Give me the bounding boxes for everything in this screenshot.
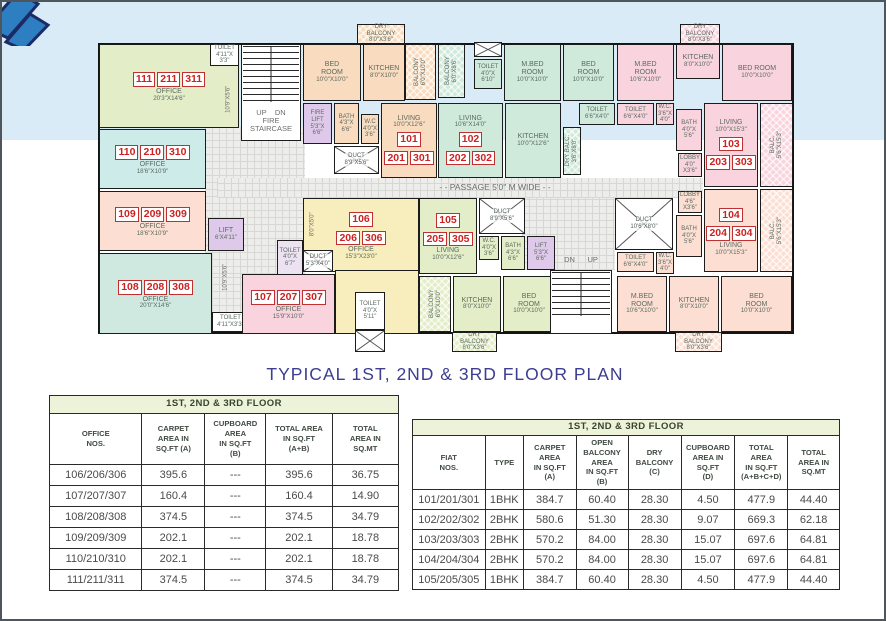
- room-label: 4'0"X: [363, 126, 377, 133]
- room-label: 3'3": [220, 58, 230, 65]
- unit-number-plate: 302: [472, 151, 496, 166]
- table-cell: 18.78: [332, 528, 398, 549]
- table-row: 109/209/309202.1---202.118.78: [50, 528, 399, 549]
- unit-number-plate: 310: [166, 145, 190, 160]
- room-label: STAIRCASE: [250, 125, 292, 133]
- unit-number-plate: 211: [157, 72, 180, 87]
- duct-105: DUCT8'9"X5'6": [479, 198, 525, 234]
- floor-plan-sheet: DRYBALCONY8'0"X3'6"DRYBALCONY8'0"X3'6"DR…: [0, 0, 886, 621]
- unit-number-plate: 102: [459, 132, 483, 147]
- table-row: 102/202/3022BHK580.651.3028.309.07669.36…: [413, 510, 840, 530]
- room-label: X3'6": [683, 168, 697, 175]
- table-cell: 2BHK: [485, 510, 523, 530]
- unit-number-plate: 303: [732, 155, 756, 170]
- table-row: 104/204/3042BHK570.284.0028.3015.07697.6…: [413, 550, 840, 570]
- mid-staircase-label: DN UP: [550, 254, 612, 267]
- unit-number-row: 102: [458, 130, 484, 147]
- room-bedroom-101: BEDROOM10'0"X10'0": [303, 44, 361, 101]
- table-cell: 109/209/309: [50, 528, 142, 549]
- table-cell: 14.90: [332, 486, 398, 507]
- table-cell: ---: [205, 549, 266, 570]
- rotated-label: 8'0"X5'0": [310, 212, 317, 236]
- unit-number-row: 109209309: [114, 205, 191, 222]
- dry-balcony-104: DRYBALCONY8'0"X3'6": [675, 332, 722, 352]
- rotated-label: BALCONY6'0"X10'0": [414, 58, 427, 87]
- room-label: 5'3"X: [534, 250, 548, 257]
- table-cell: 62.18: [788, 510, 840, 530]
- room-office-108: 108208308OFFICE20'0"X14'6": [99, 253, 212, 334]
- unit-number-plate: 305: [449, 232, 473, 247]
- table-header-cell: OPEN BALCONY AREA IN SQ.FT (B): [576, 436, 628, 490]
- table-header-cell: CUPBOARD AREA IN SQ.FT (D): [681, 436, 735, 490]
- room-label: 10'9"X5'6": [223, 264, 230, 291]
- room-living-102: LIVING10'6"X14'0"102202302: [438, 103, 503, 178]
- room-label: BALCONY: [460, 339, 489, 346]
- unit-number-row: 205305: [422, 230, 473, 247]
- table-row: 103/203/3032BHK570.284.0028.3015.07697.6…: [413, 530, 840, 550]
- room-dimensions: 8'0"X10'0": [680, 304, 708, 311]
- room-label: 4'0"X: [481, 71, 495, 78]
- room-dimensions: 10'6"X14'0": [455, 122, 487, 129]
- rotated-label: BALCONY6'0"X8'6": [445, 57, 458, 86]
- room-label: M.BED: [521, 61, 543, 69]
- table-cell: 28.30: [628, 530, 681, 550]
- dry-balcony-105: DRYBALCONY8'0"X3'6": [452, 332, 497, 352]
- room-label: 6'7": [285, 261, 295, 268]
- room-label: 4'0"X: [363, 308, 377, 315]
- table-row: 110/210/310202.1---202.118.78: [50, 549, 399, 570]
- table-header-cell: TOTAL AREA IN SQ.FT (A+B): [266, 414, 332, 465]
- dry-balcony-101: DRYBALCONY8'0"X3'6": [357, 24, 405, 44]
- table-title: 1ST, 2ND & 3RD FLOOR: [413, 420, 840, 436]
- room-label: 6'6": [536, 256, 546, 263]
- room-label: 8'0"X5'0": [310, 212, 317, 236]
- room-bedroom-104: BEDROOM10'0"X10'0": [721, 276, 792, 332]
- room-toilet-104: TOILET 6'6"X4'0": [617, 252, 654, 272]
- table-cell: 64.81: [788, 550, 840, 570]
- shaft-102: [474, 42, 502, 57]
- room-bedroom-105: BEDROOM10'0"X10'0": [503, 276, 555, 332]
- room-label: 4'11"X3'3": [217, 322, 244, 329]
- unit-number-plate: 307: [302, 290, 326, 305]
- room-label: TOILET 6'6"X4'0": [618, 107, 653, 120]
- table-cell: 60.40: [576, 490, 628, 510]
- room-dimensions: 20'0"X14'6": [140, 303, 172, 310]
- unit-number-plate: 304: [732, 226, 756, 241]
- room-label: BALCONY: [445, 57, 452, 86]
- unit-number-plate: 309: [166, 207, 190, 222]
- room-label: 4'0"X: [482, 245, 496, 252]
- room-label: 4'11"X: [216, 52, 233, 59]
- room-dimensions: 10'0"X15'3": [715, 127, 747, 134]
- room-wc-105: W.C.4'0"X3'6": [479, 236, 499, 260]
- unit-number-plate: 210: [140, 145, 164, 160]
- room-label: TOILET: [280, 248, 301, 255]
- table-cell: 202.1: [142, 528, 205, 549]
- room-label: TOILET: [220, 315, 241, 322]
- table-cell: 1BHK: [485, 570, 523, 590]
- table-cell: 107/207/307: [50, 486, 142, 507]
- room-label: 4'0": [660, 266, 670, 273]
- room-dimensions: 15'3"X23'0": [345, 254, 377, 261]
- table-cell: 160.4: [266, 486, 332, 507]
- room-dimensions: 10'6"X10'0": [626, 308, 658, 315]
- table-cell: 669.3: [735, 510, 788, 530]
- room-dimensions: 10'0"X10'0": [513, 308, 545, 315]
- room-label: 3'6"X8'0": [572, 135, 579, 166]
- table-cell: 374.5: [142, 570, 205, 591]
- table-cell: 101/201/301: [413, 490, 486, 510]
- unit-number-plate: 101: [397, 132, 421, 147]
- table-cell: 28.30: [628, 570, 681, 590]
- table-header-cell: TYPE: [485, 436, 523, 490]
- unit-number-row: 201301: [383, 149, 434, 166]
- room-kitchen-105: KITCHEN8'0"X10'0": [453, 276, 501, 332]
- room-office-107: 107207307OFFICE15'9"X10'0": [242, 274, 335, 334]
- table-cell: 202.1: [266, 549, 332, 570]
- corridor-dim-label: 10'9"X5'6": [221, 72, 237, 127]
- table-cell: 28.30: [628, 550, 681, 570]
- unit-number-row: 203303: [705, 153, 756, 170]
- room-label: 5'11": [364, 314, 377, 321]
- table-cell: 28.30: [628, 510, 681, 530]
- room-label: 8'0"X3'6": [369, 37, 393, 44]
- unit-number-plate: 208: [144, 280, 168, 295]
- duct-101: DUCT8'9"X5'6": [334, 146, 379, 174]
- table-header-cell: DRY BALCONY (C): [628, 436, 681, 490]
- room-label: 8'0"X3'6": [688, 37, 712, 44]
- table-row: 107/207/307160.4---160.414.90: [50, 486, 399, 507]
- room-toilet-106: TOILET4'0"X5'11": [355, 292, 385, 330]
- unit-number-row: 108208308: [117, 278, 194, 295]
- room-label: 8'0"X3'6": [687, 345, 711, 352]
- unit-number-plate: 204: [706, 226, 730, 241]
- table-cell: 570.2: [524, 530, 577, 550]
- unit-number-row: 202302: [445, 149, 496, 166]
- table-cell: 18.78: [332, 549, 398, 570]
- room-kitchen-104: KITCHEN8'0"X10'0": [669, 276, 719, 332]
- unit-number-plate: 209: [141, 207, 165, 222]
- room-dimensions: 10'0"X10'0": [741, 308, 773, 315]
- room-label: 3'6": [484, 251, 494, 258]
- table-cell: 44.40: [788, 490, 840, 510]
- table-cell: 477.9: [735, 570, 788, 590]
- room-label: BALC.: [770, 217, 777, 244]
- table-header-cell: CARPET AREA IN SQ.FT (A): [142, 414, 205, 465]
- passage-label: - - PASSAGE 5'0" M WIDE - -: [295, 181, 695, 195]
- room-kitchen-102: KITCHEN10'0"X12'6": [505, 103, 561, 178]
- mid-staircase-treads: [552, 272, 610, 316]
- table-header-cell: FIAT NOS.: [413, 436, 486, 490]
- unit-number-plate: 104: [719, 208, 743, 223]
- table-cell: 110/210/310: [50, 549, 142, 570]
- room-dimensions: 8'0"X10'0": [370, 73, 398, 80]
- room-toilet-103: TOILET 6'6"X4'0": [617, 103, 654, 125]
- balcony-102: BALCONY6'0"X8'6": [438, 44, 465, 98]
- room-lift-left: LIFT6'X4'11": [208, 218, 244, 251]
- fire-staircase-label: UP DNFIRESTAIRCASE: [241, 102, 301, 140]
- table-row: 108/208/308374.5---374.534.79: [50, 507, 399, 528]
- room-kitchen-101: KITCHEN8'0"X10'0": [363, 44, 405, 101]
- room-label: M.BED: [631, 293, 653, 301]
- duct-toilet-106: [355, 330, 385, 352]
- table-cell: 84.00: [576, 550, 628, 570]
- room-mbedroom-104: M.BEDROOM10'6"X10'0": [617, 276, 667, 332]
- room-label: TOILET: [360, 301, 381, 308]
- rotated-label: BALC.5'6"X15'3": [770, 217, 783, 244]
- dry-balcony-103: DRYBALCONY8'0"X3'6": [680, 24, 720, 44]
- table-row: 101/201/3011BHK384.760.4028.304.50477.94…: [413, 490, 840, 510]
- room-label: 4'3"X: [506, 250, 520, 257]
- room-living-101: LIVING10'0"X12'6"101201301: [381, 103, 437, 178]
- table-cell: ---: [205, 528, 266, 549]
- balcony-101: BALCONY6'0"X10'0": [405, 44, 436, 100]
- room-label: DRY: [468, 332, 481, 339]
- unit-number-plate: 206: [336, 231, 360, 246]
- table-cell: ---: [205, 465, 266, 486]
- table-cell: 697.6: [735, 530, 788, 550]
- room-wc-101: W.C4'0"X3'6": [361, 114, 379, 144]
- unit-number-plate: 201: [384, 151, 408, 166]
- table-header-cell: CUPBOARD AREA IN SQ.FT (B): [205, 414, 266, 465]
- table-cell: 4.50: [681, 490, 735, 510]
- table-cell: 34.79: [332, 570, 398, 591]
- room-label: 4'0": [660, 117, 670, 124]
- room-dimensions: 18'6"X10'9": [137, 169, 169, 176]
- unit-number-row: 111211311: [132, 70, 206, 87]
- unit-number-plate: 109: [115, 207, 139, 222]
- table-cell: 477.9: [735, 490, 788, 510]
- room-label: DRY: [375, 24, 388, 31]
- room-label: - - PASSAGE 5'0" M WIDE - -: [439, 183, 550, 192]
- table-row: 105/205/3051BHK384.760.4028.304.50477.94…: [413, 570, 840, 590]
- table-cell: 374.5: [266, 507, 332, 528]
- unit-number-plate: 301: [410, 151, 434, 166]
- room-label: 3'6"X: [658, 111, 672, 118]
- unit-number-plate: 108: [118, 280, 142, 295]
- room-label: BALC.: [770, 131, 777, 158]
- unit-number-plate: 308: [169, 280, 193, 295]
- table-cell: 202.1: [266, 528, 332, 549]
- unit-number-plate: 110: [115, 145, 138, 160]
- table-cell: 374.5: [266, 570, 332, 591]
- table-cell: 2BHK: [485, 530, 523, 550]
- table-cell: 580.6: [524, 510, 577, 530]
- duct-small: DUCT5'3"X4'0": [303, 250, 333, 272]
- unit-number-plate: 107: [251, 290, 275, 305]
- room-label: BALCONY: [367, 31, 396, 38]
- room-dimensions: 10'0"X10'0": [741, 73, 773, 80]
- unit-number-row: 204304: [705, 224, 756, 241]
- room-wc-103: W.C.3'6"X4'0": [656, 103, 674, 125]
- table-cell: 4.50: [681, 570, 735, 590]
- table-cell: 395.6: [142, 465, 205, 486]
- room-office-109: 109209309OFFICE18'6"X10'9": [99, 191, 206, 251]
- dry-balcony-102: DRY BALC.3'6"X8'0": [563, 127, 581, 175]
- room-label: BED: [749, 293, 763, 301]
- room-toilet-102b: TOILET 6'6"X4'0": [579, 103, 615, 125]
- room-kitchen-103: KITCHEN8'0"X10'0": [676, 44, 720, 79]
- rotated-label: 10'9"X5'6": [226, 86, 233, 113]
- unit-number-plate: 106: [349, 212, 373, 227]
- unit-number-plate: 111: [133, 72, 155, 87]
- room-toilet-top: TOILET4'11"X3'3": [210, 44, 239, 66]
- room-label: W.C.: [659, 253, 672, 260]
- room-label: TOILET 6'6"X4'0": [618, 255, 653, 268]
- room-dimensions: 8'0"X10'0": [463, 304, 491, 311]
- room-bedroom-103: BED ROOM10'0"X10'0": [722, 44, 792, 101]
- table-cell: 9.07: [681, 510, 735, 530]
- room-label: BALCONY: [684, 339, 713, 346]
- table-row: 106/206/306395.6---395.636.75: [50, 465, 399, 486]
- room-office-110: 110210310OFFICE18'6"X10'9": [99, 129, 206, 189]
- duct-label: DUCT5'3"X4'0": [306, 254, 330, 267]
- room-label: W.C.: [483, 238, 496, 245]
- table-header-cell: TOTAL AREA IN SQ.MT: [332, 414, 398, 465]
- unit-number-plate: 203: [706, 155, 730, 170]
- table-row: 111/211/311374.5---374.534.79: [50, 570, 399, 591]
- room-label: 6'0"X8'6": [452, 57, 459, 86]
- room-label: 6'6": [508, 256, 518, 263]
- room-mbedroom-103: M.BEDROOM10'6"X10'0": [617, 44, 674, 101]
- room-label: BATH: [681, 226, 697, 233]
- room-label: X3'6": [683, 205, 697, 212]
- unit-number-plate: 202: [446, 151, 470, 166]
- table-cell: 160.4: [142, 486, 205, 507]
- table-header-cell: TOTAL AREA IN SQ.MT: [788, 436, 840, 490]
- table-cell: 28.30: [628, 490, 681, 510]
- duct-104: DUCT10'6"X8'0": [615, 198, 673, 250]
- table-cell: 106/206/306: [50, 465, 142, 486]
- table-cell: ---: [205, 507, 266, 528]
- room-label: TOILET 6'6"X4'0": [580, 107, 614, 120]
- room-label: 3'6": [365, 132, 375, 139]
- room-label: 4'0"X: [682, 127, 696, 134]
- room-label: 5'3"X: [311, 124, 325, 131]
- room-dimensions: 6'X4'11": [215, 235, 237, 242]
- room-label: 5'6"X15'3": [777, 217, 784, 244]
- room-label: 5'6": [684, 239, 694, 246]
- room-label: 4'6": [685, 199, 695, 206]
- room-dimensions: 10'0"X15'3": [715, 250, 747, 257]
- room-dimensions: 18'6"X10'9": [137, 231, 169, 238]
- table-cell: 34.79: [332, 507, 398, 528]
- room-label: W.C: [364, 119, 375, 126]
- room-bath-105: BATH4'3"X6'6": [501, 236, 525, 270]
- room-label: DRY: [692, 332, 705, 339]
- unit-number-plate: 105: [436, 213, 460, 228]
- room-label: DN UP: [564, 256, 598, 264]
- room-label: BED: [581, 61, 595, 69]
- room-dimensions: 10'6"X10'0": [630, 77, 662, 84]
- table-cell: 36.75: [332, 465, 398, 486]
- unit-number-plate: 311: [182, 72, 205, 87]
- room-label: BATH: [681, 120, 697, 127]
- table-cell: 395.6: [266, 465, 332, 486]
- room-dimensions: 10'0"X12'6": [432, 255, 464, 262]
- unit-number-plate: 306: [362, 231, 386, 246]
- room-wc-104: W.C.3'6"X4'0": [656, 252, 674, 274]
- unit-number-row: 206306: [335, 229, 386, 246]
- rotated-label: DRY BALC.3'6"X8'0": [565, 135, 578, 166]
- unit-number-row: 110210310: [114, 143, 190, 160]
- unit-number-row: 105: [435, 211, 461, 228]
- rotated-label: 10'9"X5'6": [223, 264, 230, 291]
- room-label: 4'0"X: [283, 254, 297, 261]
- room-label: LIFT: [311, 117, 323, 124]
- room-label: TOILET: [478, 64, 499, 71]
- duct-label: DUCT8'9"X5'6": [345, 153, 369, 166]
- table-title: 1ST, 2ND & 3RD FLOOR: [50, 396, 399, 414]
- unit-number-row: 107207307: [250, 288, 327, 305]
- table-cell: 15.07: [681, 550, 735, 570]
- duct-label: DUCT10'6"X8'0": [630, 217, 657, 230]
- room-label: BALCONY: [686, 31, 715, 38]
- room-label: 4'0"X: [682, 233, 696, 240]
- room-dimensions: 15'9"X10'0": [273, 314, 305, 321]
- table-cell: 202.1: [142, 549, 205, 570]
- room-bath-104: BATH4'0"X5'6": [676, 215, 702, 257]
- room-dimensions: 10'0"X12'6": [517, 141, 549, 148]
- duct-label: DUCT8'9"X5'6": [490, 209, 514, 222]
- table-header-cell: TOTAL AREA IN SQ.FT (A+B+C+D): [735, 436, 788, 490]
- room-lobby-103: LOBBY4'0"X3'6": [678, 153, 702, 177]
- office-area-table: 1ST, 2ND & 3RD FLOOROFFICE NOS.CARPET AR…: [49, 395, 399, 591]
- room-label: 5'6": [684, 133, 694, 140]
- balcony-104: BALC.5'6"X15'3": [760, 189, 793, 272]
- table-cell: 64.81: [788, 530, 840, 550]
- room-fire-lift: FIRELIFT5'3"X6'6": [303, 103, 332, 144]
- rotated-label: BALC.5'6"X15'3": [770, 131, 783, 158]
- corridor-dim-label-2: 10'9"X5'6": [218, 250, 234, 305]
- room-label: BATH: [505, 243, 521, 250]
- room-toilet-102a: TOILET4'0"X6'10": [474, 59, 502, 89]
- room-label: DRY: [694, 24, 707, 31]
- unit-number-plate: 205: [423, 232, 447, 247]
- room-label: BED: [522, 293, 536, 301]
- room-label: LIFT: [535, 243, 547, 250]
- room-label: BALCONY: [428, 290, 435, 319]
- table-cell: 570.2: [524, 550, 577, 570]
- room-mbedroom-102: M.BEDROOM10'0"X10'0": [504, 44, 561, 101]
- table-cell: ---: [205, 486, 266, 507]
- unit-number-row: 104: [718, 206, 744, 223]
- room-label: 10'9"X5'6": [226, 86, 233, 113]
- room-label: LOBBY: [680, 155, 700, 162]
- room-label: BATH: [339, 114, 355, 121]
- balcony-103: BALC.5'6"X15'3": [760, 103, 793, 187]
- room-label: BED: [325, 61, 339, 69]
- room-label: 6'0"X10'0": [421, 58, 428, 87]
- table-cell: 84.00: [576, 530, 628, 550]
- table-cell: 105/205/305: [413, 570, 486, 590]
- table-cell: ---: [205, 570, 266, 591]
- room-label: DRY BALC.: [565, 135, 572, 166]
- office-106-entry-dim: 8'0"X5'0": [305, 200, 321, 248]
- room-label: 6'10": [481, 77, 494, 84]
- room-label: 4'0": [685, 162, 695, 169]
- table-cell: 374.5: [142, 507, 205, 528]
- room-dimensions: 10'0"X10'0": [517, 77, 549, 84]
- table-cell: 1BHK: [485, 490, 523, 510]
- room-label: 3'6"X: [658, 260, 672, 267]
- unit-number-row: 103: [718, 135, 744, 152]
- flat-area-table: 1ST, 2ND & 3RD FLOORFIAT NOS.TYPECARPET …: [412, 419, 840, 590]
- room-label: FIRE: [311, 110, 325, 117]
- unit-number-row: 106: [348, 210, 374, 227]
- table-cell: 15.07: [681, 530, 735, 550]
- room-living-105: 105205305LIVING10'0"X12'6": [419, 198, 477, 274]
